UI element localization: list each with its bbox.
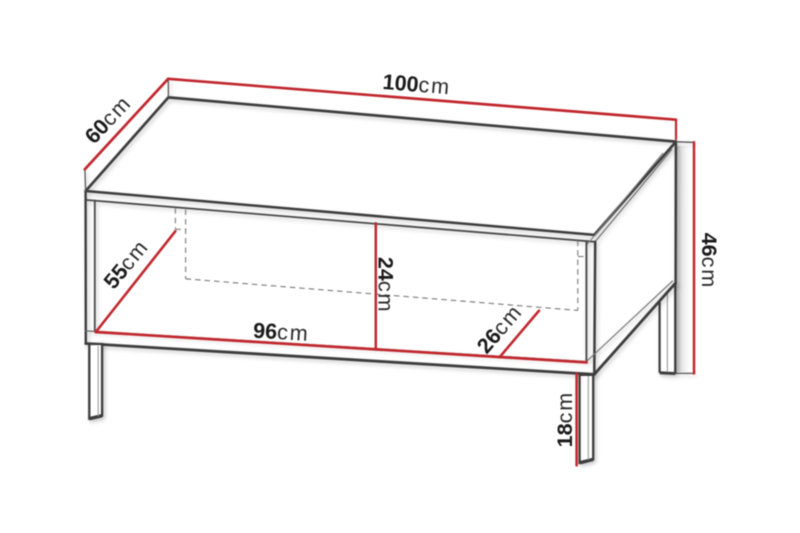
- svg-text:100cm: 100cm: [382, 69, 452, 99]
- svg-text:46cm: 46cm: [697, 233, 722, 289]
- svg-text:96cm: 96cm: [253, 318, 311, 346]
- svg-text:60cm: 60cm: [79, 90, 136, 148]
- svg-text:26cm: 26cm: [472, 299, 528, 358]
- svg-text:55cm: 55cm: [98, 234, 153, 293]
- svg-text:24cm: 24cm: [374, 257, 399, 313]
- svg-text:18cm: 18cm: [552, 391, 577, 447]
